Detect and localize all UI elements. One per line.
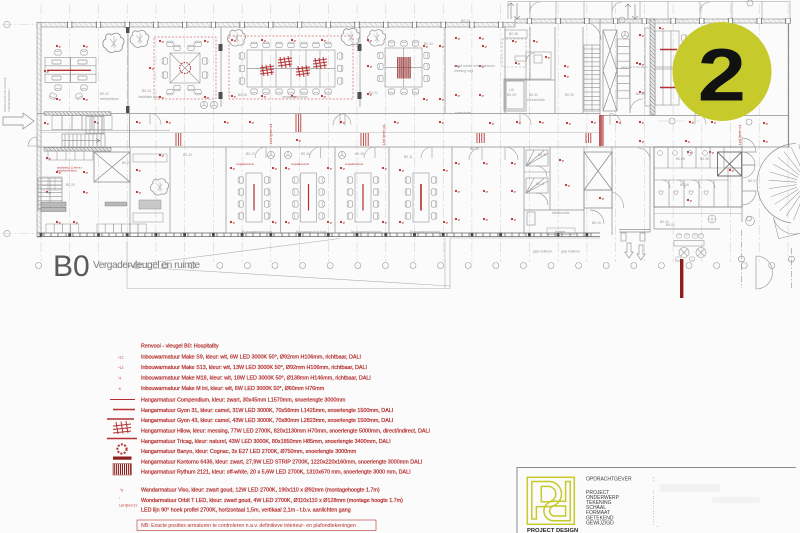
svg-text:GEWIJZIGD: GEWIJZIGD [586,520,614,526]
svg-text:Hangarmatuur Gyon 43, kleur: c: Hangarmatuur Gyon 43, kleur: camel, 43W … [141,418,393,424]
svg-text:Led lijnen 21: Led lijnen 21 [119,504,137,508]
svg-text:Led lijnen o1: Led lijnen o1 [382,125,386,145]
svg-text:B0.10: B0.10 [183,153,192,157]
svg-text:Vergadervleugel en ruimte: Vergadervleugel en ruimte [93,260,200,271]
svg-text:°4: °4 [118,377,121,381]
svg-text:B0.31: B0.31 [529,93,538,97]
svg-text:B0.15: B0.15 [355,152,364,156]
svg-text:Renvooi - vleugel B0: Hospital: Renvooi - vleugel B0: Hospitality [141,344,219,350]
svg-text:Led lijnen o1: Led lijnen o1 [269,124,273,144]
svg-text:batterijverlichting: batterijverlichting [57,169,77,173]
svg-text:vergaderruimte: vergaderruimte [345,162,364,166]
svg-text:B0.30: B0.30 [565,93,574,97]
svg-text:B0.21: B0.21 [122,161,131,165]
svg-text:B0.21: B0.21 [369,91,378,95]
svg-text:PROJECT DESIGN: PROJECT DESIGN [527,528,578,533]
svg-text::: : [653,520,654,526]
svg-text:+12: +12 [118,356,124,360]
svg-text:9x vergaderruimte boos: 9x vergaderruimte boos [242,230,273,234]
svg-text:B0.34: B0.34 [636,92,645,96]
svg-text:werkplekken: werkplekken [100,97,119,101]
svg-text:installatie loos: installatie loos [138,95,160,99]
svg-text:Wondarmatuur Orbit T LED, kleu: Wondarmatuur Orbit T LED, kleur: zwart g… [141,498,403,504]
svg-text:B0.22: B0.22 [100,92,109,96]
svg-text:Hangarmatuur Tricag, kleur: na: Hangarmatuur Tricag, kleur: naturel, 43W… [141,439,391,445]
svg-text:LED lijn 90° hoek profiel 2700: LED lijn 90° hoek profiel 2700K, horizon… [141,508,351,514]
svg-text:B0.20: B0.20 [66,183,75,187]
svg-text:9x vergaderruimte boos: 9x vergaderruimte boos [351,230,382,234]
svg-text:B0.06: B0.06 [680,183,689,187]
svg-text:B0.16: B0.16 [301,152,310,156]
svg-text:B0.11: B0.11 [536,182,545,186]
svg-text:Lift: Lift [509,88,514,92]
svg-text:B0.13: B0.13 [461,19,470,23]
svg-text:vergaderen boos: vergaderen boos [282,95,308,99]
svg-text:B0.35: B0.35 [509,32,518,36]
svg-text:9x vergaderruimte boos: 9x vergaderruimte boos [296,230,327,234]
svg-text:kantruimte: kantruimte [455,111,471,115]
svg-text:meeting vdgl: meeting vdgl [454,69,473,73]
svg-text:B0.34: B0.34 [424,42,433,46]
svg-text::: : [653,476,654,482]
svg-text:OPDRACHTGEVER: OPDRACHTGEVER [586,476,632,482]
svg-text:Inbouwarmatuur Make S13, kleur: Inbouwarmatuur Make S13, kleur: wit, 13W… [141,365,367,371]
svg-text:.: . [657,523,658,529]
svg-text:B0.05: B0.05 [676,157,685,161]
svg-text:B0.13: B0.13 [470,147,479,151]
svg-text:Inbouwarmatuur Make M18, kleur: Inbouwarmatuur Make M18, kleur: wit, 18W… [141,376,371,382]
svg-text:kleedruimte: kleedruimte [552,211,570,215]
svg-text:Inbouwarmatuur Make M ini, kle: Inbouwarmatuur Make M ini, kleur: wit, 6… [141,386,325,392]
svg-text:B0.25: B0.25 [507,93,516,97]
svg-text:glas rlulleren: glas rlulleren [533,250,552,254]
svg-text:Kleed/onble: Kleed/onble [527,98,545,102]
svg-text:+13: +13 [118,366,124,370]
svg-text:Inbouwarmatuur Make S9, kleur:: Inbouwarmatuur Make S9, kleur: wit, 6W L… [141,355,361,361]
svg-text:9x vergaderruimte boos: 9x vergaderruimte boos [410,230,441,234]
svg-text:NB: Exacte posities armaturen: NB: Exacte posities armaturen te control… [141,523,356,529]
svg-text:B0.40: B0.40 [592,221,601,225]
svg-text:vergaderruimte: vergaderruimte [236,162,255,166]
svg-text:Hangarmatuur Rythum 2121, kleu: Hangarmatuur Rythum 2121, kleur: off-whi… [141,470,411,476]
svg-text:B0.24: B0.24 [142,89,151,93]
svg-text:wand niet in schranken: wand niet in schranken [621,65,648,69]
svg-text:2: 2 [698,34,746,117]
svg-text:Wandarmatuur Viso, kleur: zwar: Wandarmatuur Viso, kleur: zwart goud, 12… [141,488,380,494]
svg-text:Hangarmatuur Gyon 31, kleur: c: Hangarmatuur Gyon 31, kleur: camel, 31W … [141,408,393,414]
svg-text:Hangarmatuur Hilow, kleur: mes: Hangarmatuur Hilow, kleur: messing, 77W … [141,429,430,435]
svg-text:bunker: bunker [555,230,566,234]
svg-text:·6: ·6 [118,387,121,391]
svg-text:B0.07: B0.07 [748,179,757,183]
svg-text:B0: B0 [53,250,90,283]
svg-text:B0.32: B0.32 [538,153,547,157]
svg-text:B0.26: B0.26 [238,93,247,97]
svg-text:vergaderruimte: vergaderruimte [291,162,310,166]
svg-text:glas rlulleren: glas rlulleren [561,250,580,254]
svg-text:Hangarmatuur Compendium, kleur: Hangarmatuur Compendium, kleur: zwart, 3… [141,398,346,404]
svg-text:B0.17: B0.17 [246,152,255,156]
svg-text:Hangarmatuur Banyo, kleur: Cog: Hangarmatuur Banyo, kleur: Cognac, 3x E2… [141,449,357,455]
svg-text:B0.02: B0.02 [660,220,669,224]
svg-text:wand ruimte schoorsteenm: wand ruimte schoorsteenm [454,64,495,68]
svg-text:Led lijnen o1: Led lijnen o1 [738,125,742,145]
svg-text:Hangarmatuur Kontorno 6436, kl: Hangarmatuur Kontorno 6436, kleur: zwart… [141,459,422,465]
svg-text:°8: °8 [120,489,123,493]
svg-text:TREDEN/NIVEAU: TREDEN/NIVEAU [7,89,11,112]
svg-text:B0.06: B0.06 [700,157,709,161]
svg-text:B0.11: B0.11 [404,155,413,159]
